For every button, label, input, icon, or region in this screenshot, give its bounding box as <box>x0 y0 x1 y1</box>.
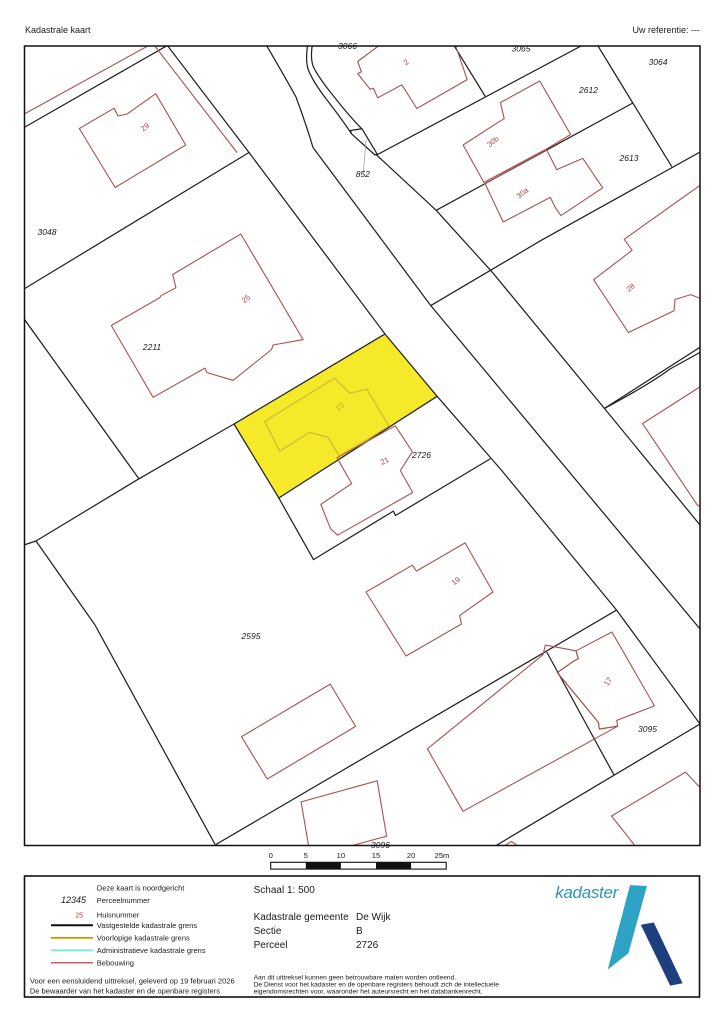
svg-text:Schaal 1: 500: Schaal 1: 500 <box>254 885 316 896</box>
svg-text:25: 25 <box>75 913 83 920</box>
svg-text:Voor een eensluidend uittrekse: Voor een eensluidend uittreksel, gelever… <box>30 977 235 986</box>
svg-text:Kadastrale kaart: Kadastrale kaart <box>25 25 91 35</box>
svg-text:19: 19 <box>450 575 462 587</box>
svg-text:B: B <box>356 926 363 937</box>
svg-text:3065: 3065 <box>512 44 531 54</box>
svg-text:Aan dit uittreksel kunnen geen: Aan dit uittreksel kunnen geen betrouwba… <box>254 975 457 982</box>
svg-text:12345: 12345 <box>61 895 87 905</box>
svg-text:Bebouwing: Bebouwing <box>97 959 134 968</box>
svg-text:0: 0 <box>269 851 273 860</box>
svg-text:3064: 3064 <box>649 57 668 67</box>
svg-text:25m: 25m <box>435 851 450 860</box>
svg-text:29: 29 <box>139 121 151 133</box>
svg-text:3096: 3096 <box>371 840 390 850</box>
svg-text:De Dienst voor het kadaster en: De Dienst voor het kadaster en de openba… <box>254 982 500 989</box>
svg-text:2613: 2613 <box>619 153 639 163</box>
svg-text:15: 15 <box>372 851 380 860</box>
svg-text:Deze kaart is noordgericht: Deze kaart is noordgericht <box>97 884 185 893</box>
svg-text:2: 2 <box>402 57 411 67</box>
svg-text:Uw referentie: ---: Uw referentie: --- <box>632 25 700 35</box>
svg-text:Vastgestelde kadastrale grens: Vastgestelde kadastrale grens <box>97 921 198 930</box>
svg-text:852: 852 <box>356 169 370 179</box>
svg-text:Kadastrale gemeente: Kadastrale gemeente <box>254 912 350 923</box>
svg-text:De bewaarder van het kadaster: De bewaarder van het kadaster en de open… <box>30 987 220 996</box>
svg-text:17: 17 <box>602 676 614 688</box>
svg-text:5: 5 <box>304 851 308 860</box>
svg-text:2211: 2211 <box>142 342 162 352</box>
svg-text:3048: 3048 <box>38 227 57 237</box>
svg-text:Perceel: Perceel <box>254 940 288 951</box>
svg-text:10: 10 <box>337 851 345 860</box>
svg-text:20: 20 <box>407 851 415 860</box>
svg-text:21: 21 <box>379 455 391 467</box>
svg-text:Perceelnummer: Perceelnummer <box>97 896 150 905</box>
svg-text:2726: 2726 <box>411 450 431 460</box>
svg-text:Administratieve kadastrale gre: Administratieve kadastrale grens <box>97 946 206 955</box>
svg-text:25: 25 <box>240 293 252 305</box>
svg-text:2595: 2595 <box>241 631 261 641</box>
svg-text:Voorlopige kadastrale grens: Voorlopige kadastrale grens <box>97 934 190 943</box>
svg-text:eigendomsrechten voor, waarond: eigendomsrechten voor, waaronder het aut… <box>254 989 483 996</box>
svg-text:Sectie: Sectie <box>254 926 282 937</box>
svg-text:2612: 2612 <box>578 85 598 95</box>
svg-text:30a: 30a <box>515 185 531 200</box>
svg-text:Huisnummer: Huisnummer <box>97 911 140 920</box>
svg-text:3066: 3066 <box>338 41 357 51</box>
svg-text:De Wijk: De Wijk <box>356 912 391 923</box>
svg-text:28: 28 <box>624 281 636 293</box>
svg-text:3095: 3095 <box>638 724 657 734</box>
svg-text:30b: 30b <box>485 134 500 149</box>
svg-text:2726: 2726 <box>356 940 379 951</box>
svg-text:kadaster: kadaster <box>555 883 619 902</box>
